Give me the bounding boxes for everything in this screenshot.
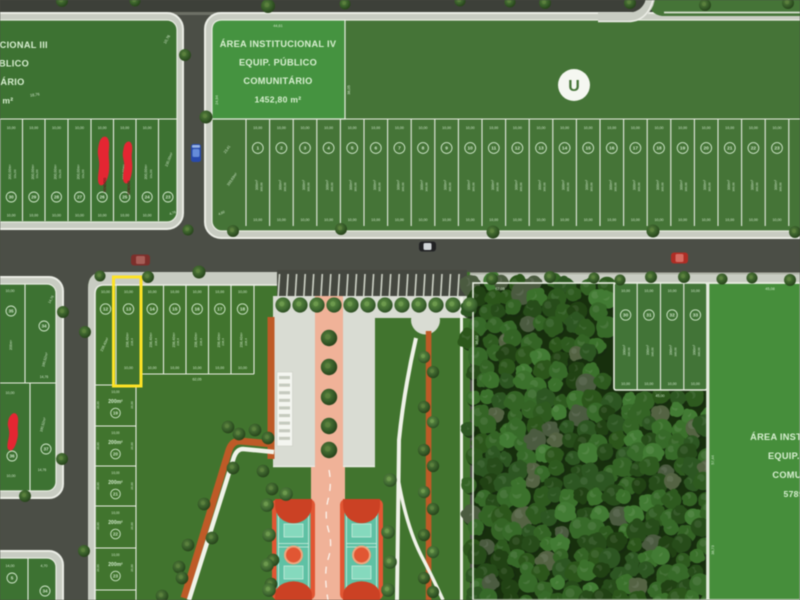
svg-text:10,00: 10,00	[560, 218, 569, 222]
svg-text:10,00: 10,00	[29, 214, 38, 218]
svg-text:37: 37	[43, 447, 49, 452]
svg-text:14,76: 14,76	[38, 468, 47, 472]
svg-text:10,00: 10,00	[702, 218, 711, 222]
svg-text:10,00: 10,00	[631, 126, 640, 130]
svg-text:10x,00: 10x,00	[81, 169, 85, 178]
svg-text:5: 5	[351, 146, 354, 152]
svg-text:31: 31	[646, 313, 652, 319]
svg-text:10,00: 10,00	[607, 218, 616, 222]
svg-text:300m²: 300m²	[609, 179, 613, 190]
svg-text:U: U	[568, 78, 580, 95]
svg-text:238,4: 238,4	[154, 338, 158, 346]
svg-text:10,00: 10,00	[52, 214, 61, 218]
svg-text:17: 17	[217, 307, 223, 313]
svg-text:300,00: 300,00	[543, 182, 547, 192]
svg-text:300m²: 300m²	[396, 179, 400, 190]
svg-text:10,00: 10,00	[702, 126, 711, 130]
svg-text:200,00m²: 200,00m²	[54, 164, 58, 180]
svg-text:10,00: 10,00	[607, 126, 616, 130]
svg-text:238,4: 238,4	[199, 338, 203, 346]
svg-text:10,00: 10,00	[6, 289, 15, 293]
svg-text:COMUNITÁRIO: COMUNITÁRIO	[243, 75, 312, 86]
svg-text:34: 34	[41, 324, 47, 329]
svg-text:EQUIP. PÚBLICO: EQUIP. PÚBLICO	[0, 58, 29, 69]
svg-text:29: 29	[31, 195, 37, 200]
svg-text:300m²: 300m²	[562, 179, 566, 190]
svg-text:10,00: 10,00	[442, 126, 451, 130]
svg-text:15: 15	[172, 307, 178, 313]
svg-text:10,00: 10,00	[324, 218, 333, 222]
svg-text:10,00: 10,00	[98, 214, 107, 218]
svg-text:200m²: 200m²	[108, 399, 123, 405]
svg-text:23: 23	[774, 146, 780, 152]
svg-text:10,00: 10,00	[584, 218, 593, 222]
svg-text:10,00: 10,00	[442, 218, 451, 222]
svg-text:62,05: 62,05	[193, 378, 202, 382]
svg-text:10,00: 10,00	[537, 126, 546, 130]
svg-text:200m²: 200m²	[9, 339, 13, 350]
svg-text:22: 22	[751, 146, 757, 152]
svg-text:10,00: 10,00	[371, 126, 380, 130]
svg-text:300m²: 300m²	[656, 179, 660, 190]
svg-text:300m²: 300m²	[373, 179, 377, 190]
svg-text:2: 2	[280, 146, 283, 152]
svg-text:300,00: 300,00	[495, 182, 499, 192]
svg-text:ÁREA INSTITUCIONAL V: ÁREA INSTITUCIONAL V	[750, 431, 800, 442]
svg-text:238,40m²: 238,40m²	[194, 332, 198, 348]
svg-text:300m²: 300m²	[467, 179, 471, 190]
svg-text:10: 10	[468, 146, 474, 152]
svg-text:3: 3	[304, 146, 307, 152]
svg-text:10,00: 10,00	[513, 126, 522, 130]
svg-text:19: 19	[680, 146, 686, 152]
svg-text:10,00: 10,00	[725, 218, 734, 222]
svg-text:10,00: 10,00	[668, 289, 677, 293]
svg-text:390m²: 390m²	[692, 344, 696, 355]
svg-text:20,00: 20,00	[130, 564, 134, 572]
svg-text:10x,00: 10x,00	[13, 169, 17, 178]
svg-text:390m²: 390m²	[623, 344, 627, 355]
svg-text:10x,00: 10x,00	[35, 169, 39, 178]
svg-text:10,00: 10,00	[725, 126, 734, 130]
svg-text:300m²: 300m²	[703, 179, 707, 190]
svg-text:45,00: 45,00	[656, 394, 665, 398]
svg-text:17: 17	[633, 146, 639, 152]
svg-text:300m²: 300m²	[585, 179, 589, 190]
svg-text:238,40m²: 238,40m²	[126, 332, 130, 348]
svg-text:10,00: 10,00	[749, 218, 758, 222]
svg-text:10,00: 10,00	[301, 218, 310, 222]
svg-text:10,00: 10,00	[668, 382, 677, 386]
svg-text:390m²: 390m²	[646, 344, 650, 355]
svg-text:EQUIP. PÚBLICO: EQUIP. PÚBLICO	[239, 57, 317, 68]
svg-text:300m²: 300m²	[349, 179, 353, 190]
svg-text:10,00: 10,00	[238, 290, 247, 294]
svg-text:14,76: 14,76	[40, 375, 49, 379]
svg-text:300,00: 300,00	[779, 182, 783, 192]
svg-text:300,00: 300,00	[708, 182, 712, 192]
svg-text:28: 28	[54, 195, 60, 200]
svg-text:19: 19	[113, 411, 118, 416]
svg-text:34: 34	[42, 589, 48, 594]
svg-text:20,00: 20,00	[130, 442, 134, 450]
svg-text:390,00: 390,00	[697, 347, 701, 357]
svg-text:10,00: 10,00	[120, 126, 129, 130]
svg-text:20,00: 20,00	[96, 522, 100, 530]
svg-text:300m²: 300m²	[278, 179, 282, 190]
svg-text:12: 12	[103, 307, 109, 313]
svg-text:14,00: 14,00	[6, 564, 15, 568]
svg-text:20,00: 20,00	[96, 482, 100, 490]
svg-text:18: 18	[656, 146, 662, 152]
svg-text:VENDIDO: VENDIDO	[103, 177, 107, 192]
svg-text:10,00: 10,00	[749, 126, 758, 130]
svg-text:1: 1	[256, 146, 259, 152]
svg-text:10,00: 10,00	[148, 366, 157, 370]
svg-text:36,02: 36,02	[475, 335, 479, 345]
svg-text:10,00: 10,00	[489, 126, 498, 130]
svg-text:300,00: 300,00	[259, 182, 263, 192]
svg-text:10x,00: 10x,00	[58, 169, 62, 178]
svg-text:200m²: 200m²	[108, 562, 123, 568]
svg-text:10,00: 10,00	[7, 214, 16, 218]
svg-text:5: 5	[11, 576, 14, 581]
svg-text:300m²: 300m²	[302, 179, 306, 190]
svg-text:10,00: 10,00	[120, 214, 129, 218]
svg-text:21: 21	[727, 146, 733, 152]
svg-text:300m²: 300m²	[750, 179, 754, 190]
svg-text:10,00: 10,00	[395, 126, 404, 130]
svg-text:390,00: 390,00	[674, 347, 678, 357]
svg-text:300m²: 300m²	[326, 179, 330, 190]
svg-text:10,00: 10,00	[253, 126, 262, 130]
svg-text:300m²: 300m²	[538, 179, 542, 190]
svg-text:ÁREA INSTITUCIONAL IV: ÁREA INSTITUCIONAL IV	[220, 38, 337, 49]
svg-text:44,61: 44,61	[273, 24, 283, 28]
svg-text:10,00: 10,00	[215, 290, 224, 294]
svg-text:390m²: 390m²	[669, 344, 673, 355]
svg-text:10,00: 10,00	[111, 553, 119, 557]
svg-text:62,05: 62,05	[495, 287, 505, 291]
svg-text:300m²: 300m²	[444, 179, 448, 190]
svg-text:10,00: 10,00	[621, 382, 630, 386]
svg-text:10,00: 10,00	[691, 382, 700, 386]
svg-text:10,00: 10,00	[124, 366, 133, 370]
svg-text:200,00m²: 200,00m²	[31, 164, 35, 180]
svg-text:38,73: 38,73	[711, 545, 715, 555]
svg-text:12: 12	[515, 146, 521, 152]
svg-text:16: 16	[195, 307, 201, 313]
svg-text:14: 14	[150, 307, 156, 313]
svg-text:23: 23	[113, 574, 118, 579]
svg-text:16: 16	[609, 146, 615, 152]
svg-text:10,00: 10,00	[773, 126, 782, 130]
svg-text:1452,80 m²: 1452,80 m²	[255, 95, 302, 105]
svg-text:13: 13	[538, 146, 544, 152]
svg-text:300m²: 300m²	[680, 179, 684, 190]
svg-text:10,00: 10,00	[644, 382, 653, 386]
svg-text:300,00: 300,00	[519, 182, 523, 192]
svg-text:300,00: 300,00	[330, 182, 334, 192]
svg-text:10,00: 10,00	[395, 218, 404, 222]
svg-text:20,00: 20,00	[130, 401, 134, 409]
svg-text:10,00: 10,00	[29, 126, 38, 130]
svg-text:238,40m²: 238,40m²	[172, 332, 176, 348]
svg-text:10,00: 10,00	[513, 218, 522, 222]
svg-text:15: 15	[586, 146, 592, 152]
svg-text:8: 8	[422, 146, 425, 152]
svg-text:10,00: 10,00	[193, 290, 202, 294]
svg-text:22: 22	[113, 532, 118, 537]
svg-text:10,00: 10,00	[253, 218, 262, 222]
svg-text:10,00: 10,00	[75, 126, 84, 130]
svg-text:18: 18	[240, 307, 246, 313]
svg-text:10,00: 10,00	[301, 126, 310, 130]
svg-text:21: 21	[113, 492, 118, 497]
svg-text:10x,00: 10x,00	[149, 169, 153, 178]
svg-text:300m²: 300m²	[514, 179, 518, 190]
svg-text:10,00: 10,00	[6, 391, 15, 395]
svg-text:238,40m²: 238,40m²	[217, 332, 221, 348]
svg-text:10,00: 10,00	[170, 290, 179, 294]
svg-text:10,00: 10,00	[101, 290, 110, 294]
svg-text:ÁREA INSTITUCIONAL III: ÁREA INSTITUCIONAL III	[0, 39, 48, 50]
svg-text:10,00: 10,00	[215, 366, 224, 370]
svg-text:10,00: 10,00	[419, 126, 428, 130]
svg-text:10,00: 10,00	[348, 218, 357, 222]
svg-text:238,4: 238,4	[176, 338, 180, 346]
svg-text:4: 4	[327, 146, 330, 152]
svg-text:200,00m²: 200,00m²	[77, 164, 81, 180]
svg-text:24,94: 24,94	[215, 95, 219, 105]
svg-text:390,00: 390,00	[650, 347, 654, 357]
svg-text:300m²: 300m²	[632, 179, 636, 190]
svg-text:10,00: 10,00	[277, 126, 286, 130]
svg-text:7: 7	[398, 146, 401, 152]
svg-text:10,00: 10,00	[560, 126, 569, 130]
svg-text:300,00: 300,00	[425, 182, 429, 192]
svg-text:10,00: 10,00	[143, 126, 152, 130]
svg-text:36: 36	[9, 454, 15, 459]
svg-text:10,00: 10,00	[148, 290, 157, 294]
svg-text:10,00: 10,00	[631, 218, 640, 222]
svg-text:10,00: 10,00	[111, 390, 119, 394]
svg-text:300,00: 300,00	[354, 182, 358, 192]
svg-text:26: 26	[100, 195, 106, 200]
svg-text:300m²: 300m²	[727, 179, 731, 190]
svg-text:10,00: 10,00	[584, 126, 593, 130]
svg-text:10,00: 10,00	[75, 214, 84, 218]
svg-text:COMUNITÁRIO: COMUNITÁRIO	[0, 76, 25, 87]
svg-text:33: 33	[693, 313, 699, 319]
svg-text:238,40m²: 238,40m²	[149, 332, 153, 348]
svg-text:200,00m²: 200,00m²	[144, 164, 148, 180]
svg-text:27: 27	[77, 195, 83, 200]
svg-text:238,4: 238,4	[130, 338, 134, 346]
svg-text:VENDIDO: VENDIDO	[127, 180, 131, 195]
svg-text:10,00: 10,00	[773, 218, 782, 222]
svg-text:300,00: 300,00	[401, 182, 405, 192]
svg-text:300,00: 300,00	[307, 182, 311, 192]
svg-text:10,00: 10,00	[621, 289, 630, 293]
svg-text:200m²: 200m²	[108, 440, 123, 446]
svg-text:10,00: 10,00	[466, 218, 475, 222]
svg-text:300m²: 300m²	[420, 179, 424, 190]
svg-text:20,00: 20,00	[96, 442, 100, 450]
svg-text:57,44: 57,44	[711, 455, 715, 465]
svg-text:10,00: 10,00	[98, 126, 107, 130]
svg-text:10,00: 10,00	[170, 366, 179, 370]
svg-text:300m²: 300m²	[774, 179, 778, 190]
svg-text:10,00: 10,00	[277, 218, 286, 222]
svg-text:10,00: 10,00	[691, 289, 700, 293]
svg-text:11: 11	[491, 146, 496, 152]
svg-text:10,00: 10,00	[7, 474, 16, 478]
svg-text:10,00: 10,00	[52, 126, 61, 130]
svg-text:10,00: 10,00	[419, 218, 428, 222]
svg-text:390,00: 390,00	[627, 347, 631, 357]
svg-text:300,00: 300,00	[684, 182, 688, 192]
svg-text:10,00: 10,00	[111, 431, 119, 435]
svg-text:300,00: 300,00	[731, 182, 735, 192]
svg-text:9: 9	[445, 146, 448, 152]
svg-text:20: 20	[704, 146, 710, 152]
svg-text:10,00: 10,00	[143, 214, 152, 218]
svg-text:13: 13	[126, 307, 132, 313]
svg-text:38,05: 38,05	[347, 85, 351, 95]
svg-text:300m²: 300m²	[255, 179, 259, 190]
svg-text:10,00: 10,00	[466, 126, 475, 130]
svg-text:300,00: 300,00	[472, 182, 476, 192]
svg-text:20,00: 20,00	[96, 401, 100, 409]
svg-text:10,00: 10,00	[111, 511, 119, 515]
svg-text:10,00: 10,00	[124, 290, 133, 294]
svg-text:300m²: 300m²	[491, 179, 495, 190]
svg-text:300,00: 300,00	[637, 182, 641, 192]
svg-text:1446,46 m²: 1446,46 m²	[0, 96, 13, 106]
svg-text:300,00: 300,00	[377, 182, 381, 192]
svg-text:300,00: 300,00	[661, 182, 665, 192]
svg-text:10,00: 10,00	[371, 218, 380, 222]
svg-text:238,40m²: 238,40m²	[240, 332, 244, 348]
svg-text:23: 23	[165, 195, 171, 200]
svg-text:300,00: 300,00	[590, 182, 594, 192]
svg-text:24: 24	[145, 195, 151, 200]
svg-text:300,00: 300,00	[283, 182, 287, 192]
svg-text:10,00: 10,00	[537, 218, 546, 222]
svg-text:20,00: 20,00	[130, 522, 134, 530]
svg-text:4,70: 4,70	[41, 564, 48, 568]
svg-text:35: 35	[8, 309, 14, 314]
svg-text:10,00: 10,00	[193, 366, 202, 370]
svg-text:10,00: 10,00	[348, 126, 357, 130]
svg-text:EQUIP. PÚBLICO: EQUIP. PÚBLICO	[768, 450, 800, 461]
svg-text:20: 20	[113, 452, 118, 457]
svg-text:6: 6	[374, 146, 377, 152]
svg-text:30: 30	[623, 313, 629, 319]
svg-text:5789,75 m²: 5789,75 m²	[784, 489, 800, 499]
svg-text:300,00: 300,00	[613, 182, 617, 192]
svg-text:14: 14	[562, 146, 568, 152]
svg-text:20,00: 20,00	[130, 482, 134, 490]
svg-text:20,00: 20,00	[96, 564, 100, 572]
svg-text:30: 30	[9, 195, 15, 200]
svg-text:10,00: 10,00	[7, 126, 16, 130]
svg-text:10,00: 10,00	[644, 289, 653, 293]
svg-text:200m²: 200m²	[108, 520, 123, 526]
svg-text:238,4: 238,4	[221, 338, 225, 346]
svg-text:200,00m²: 200,00m²	[8, 164, 12, 180]
svg-text:300,00: 300,00	[566, 182, 570, 192]
svg-text:200m²: 200m²	[108, 480, 123, 486]
svg-text:238,4: 238,4	[244, 338, 248, 346]
svg-text:10,00: 10,00	[238, 366, 247, 370]
svg-text:45,08: 45,08	[765, 287, 775, 291]
svg-text:10,00: 10,00	[655, 218, 664, 222]
svg-text:COMUNITÁRIO: COMUNITÁRIO	[772, 469, 800, 480]
svg-text:10,00: 10,00	[489, 218, 498, 222]
svg-text:32: 32	[669, 313, 675, 319]
svg-text:10,00: 10,00	[111, 471, 119, 475]
svg-text:10,00: 10,00	[678, 126, 687, 130]
svg-text:10,00: 10,00	[655, 126, 664, 130]
svg-text:300,00: 300,00	[755, 182, 759, 192]
svg-text:300,00: 300,00	[448, 182, 452, 192]
svg-text:10,00: 10,00	[324, 126, 333, 130]
svg-text:10,00: 10,00	[678, 218, 687, 222]
